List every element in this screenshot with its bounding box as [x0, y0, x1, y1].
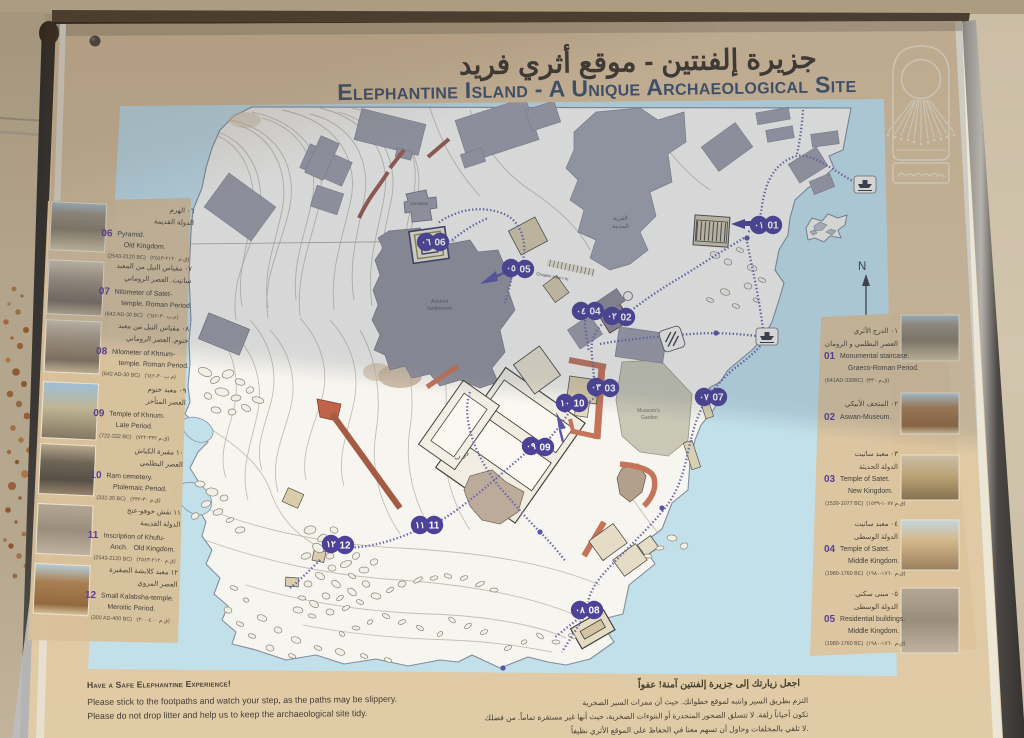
svg-text:١١: ١١ [415, 520, 425, 530]
svg-text:04: 04 [824, 544, 836, 555]
svg-text:12: 12 [339, 540, 351, 551]
svg-text:الدولة الوسطى: الدولة الوسطى [854, 603, 898, 611]
svg-text:Residential buildings.: Residential buildings. [840, 616, 905, 623]
svg-text:11: 11 [87, 530, 98, 541]
svg-text:Temple of Satet.: Temple of Satet. [840, 546, 890, 553]
svg-text:11: 11 [429, 520, 440, 531]
svg-text:(1980-1760 BC) (ق.م ١٧٦٠-١٩٨٠: (1980-1760 BC) (ق.م ١٧٦٠-١٩٨٠) [825, 571, 906, 577]
svg-text:05: 05 [824, 614, 836, 625]
svg-text:08: 08 [588, 605, 600, 616]
svg-text:٠٨: ٠٨ [575, 605, 585, 615]
svg-text:Middle Kingdom.: Middle Kingdom. [848, 628, 899, 635]
svg-text:٠٥ مبنى سكني: ٠٥ مبنى سكني [855, 590, 898, 598]
svg-text:١٢: ١٢ [326, 539, 336, 549]
svg-text:(1539-1077 BC) (ق.م ١٠٧٧-١٥٣٩: (1539-1077 BC) (ق.م ١٠٧٧-١٥٣٩) [825, 501, 906, 507]
svg-text:Middle Kingdom.: Middle Kingdom. [848, 558, 899, 565]
svg-text:12: 12 [85, 590, 97, 602]
svg-text:Have a Safe Elephantine Experi: Have a Safe Elephantine Experience! [87, 679, 231, 691]
svg-text:الدولة الوسطى: الدولة الوسطى [854, 533, 898, 541]
svg-text:٠٤ معبد ساتيت: ٠٤ معبد ساتيت [855, 520, 899, 528]
svg-text:(1980-1760 BC) (ق.م ١٧٦٠-١٩٨٠: (1980-1760 BC) (ق.م ١٧٦٠-١٩٨٠) [825, 641, 906, 647]
